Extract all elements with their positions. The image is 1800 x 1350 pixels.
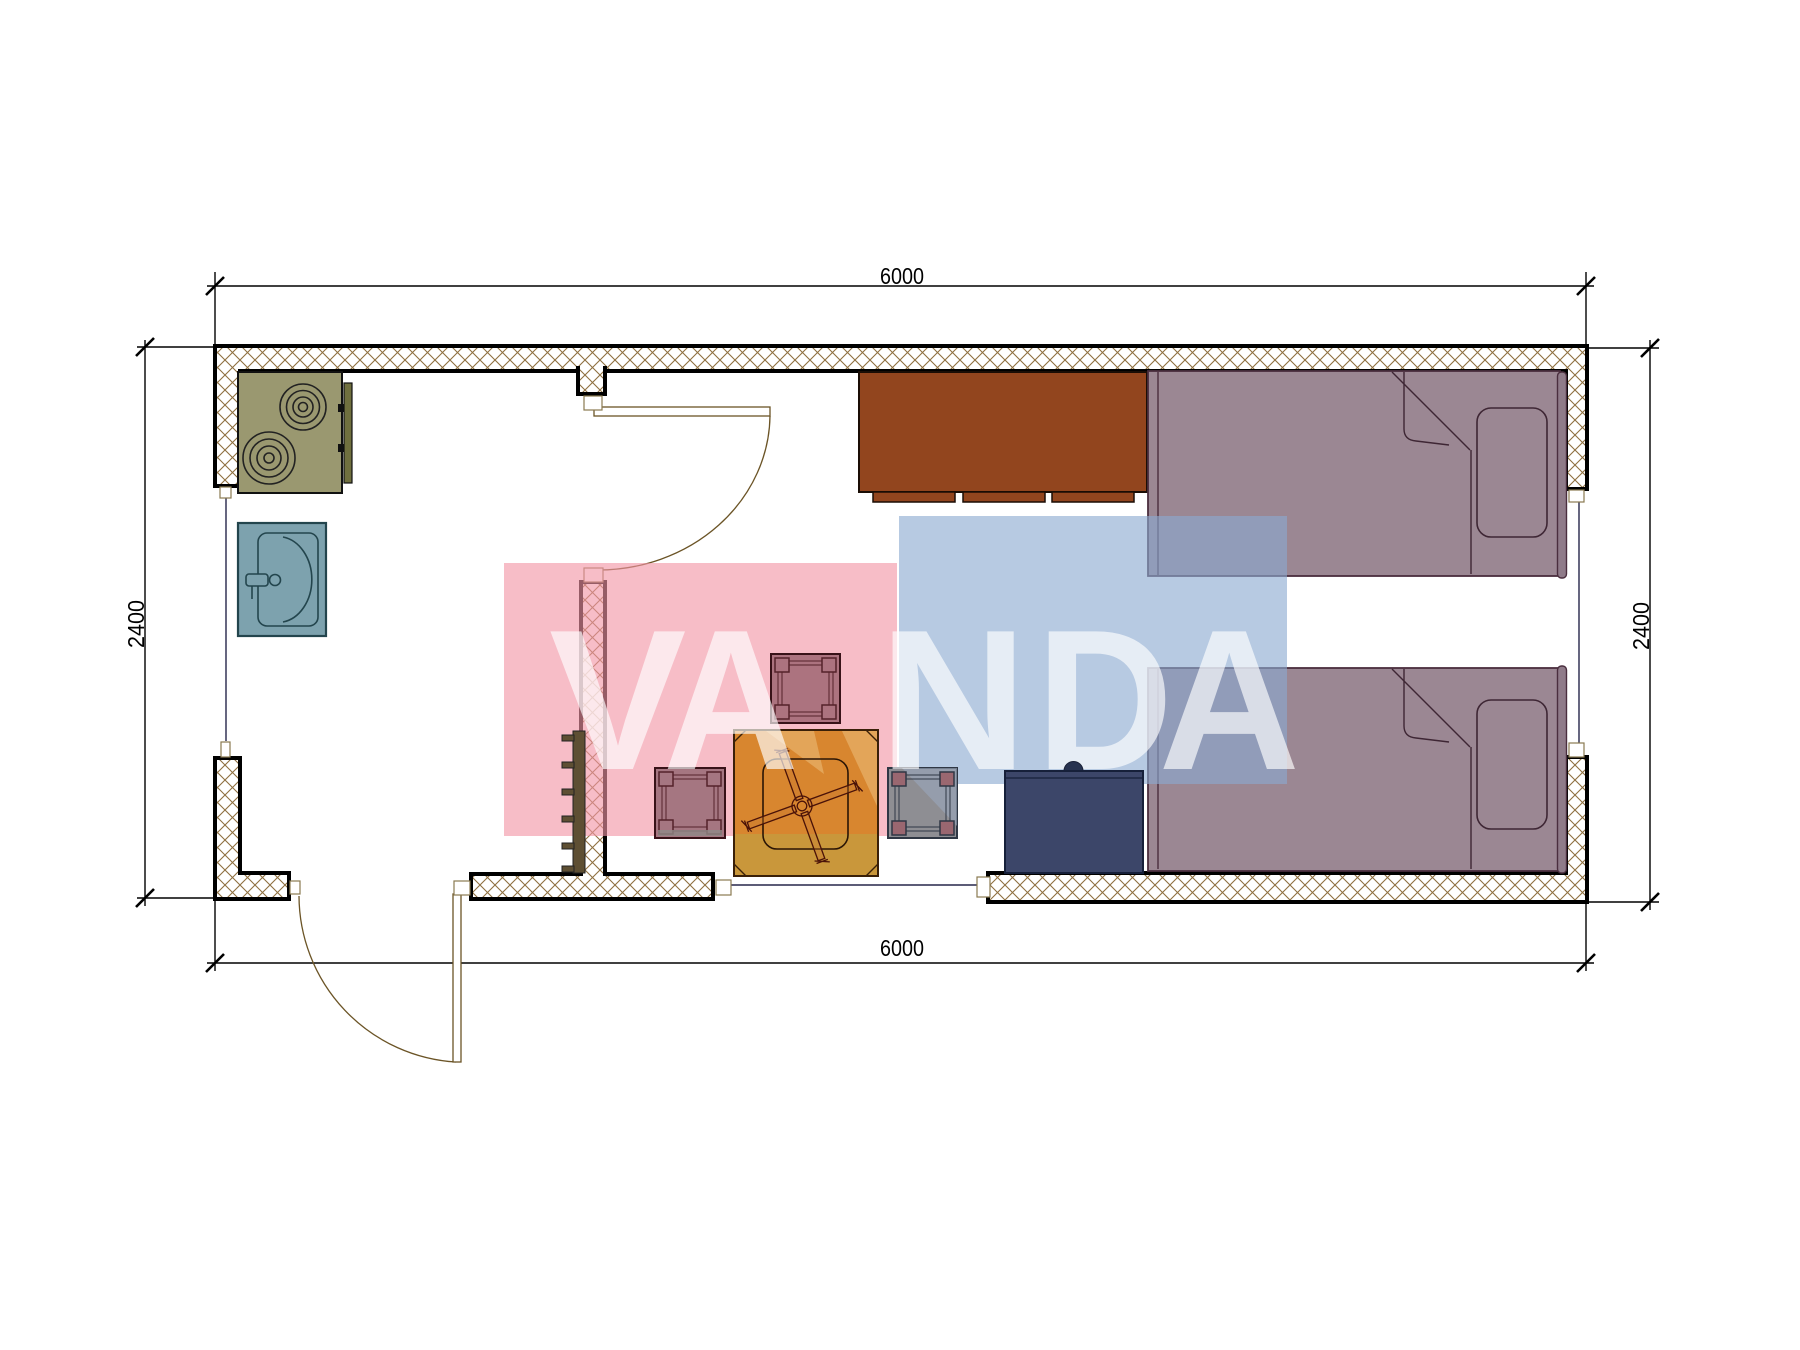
svg-text:A: A xyxy=(1159,588,1301,811)
svg-text:A: A xyxy=(663,589,799,813)
svg-text:2400: 2400 xyxy=(123,600,149,648)
svg-text:6000: 6000 xyxy=(880,263,924,289)
svg-text:2400: 2400 xyxy=(1628,602,1654,650)
svg-text:6000: 6000 xyxy=(880,935,924,961)
